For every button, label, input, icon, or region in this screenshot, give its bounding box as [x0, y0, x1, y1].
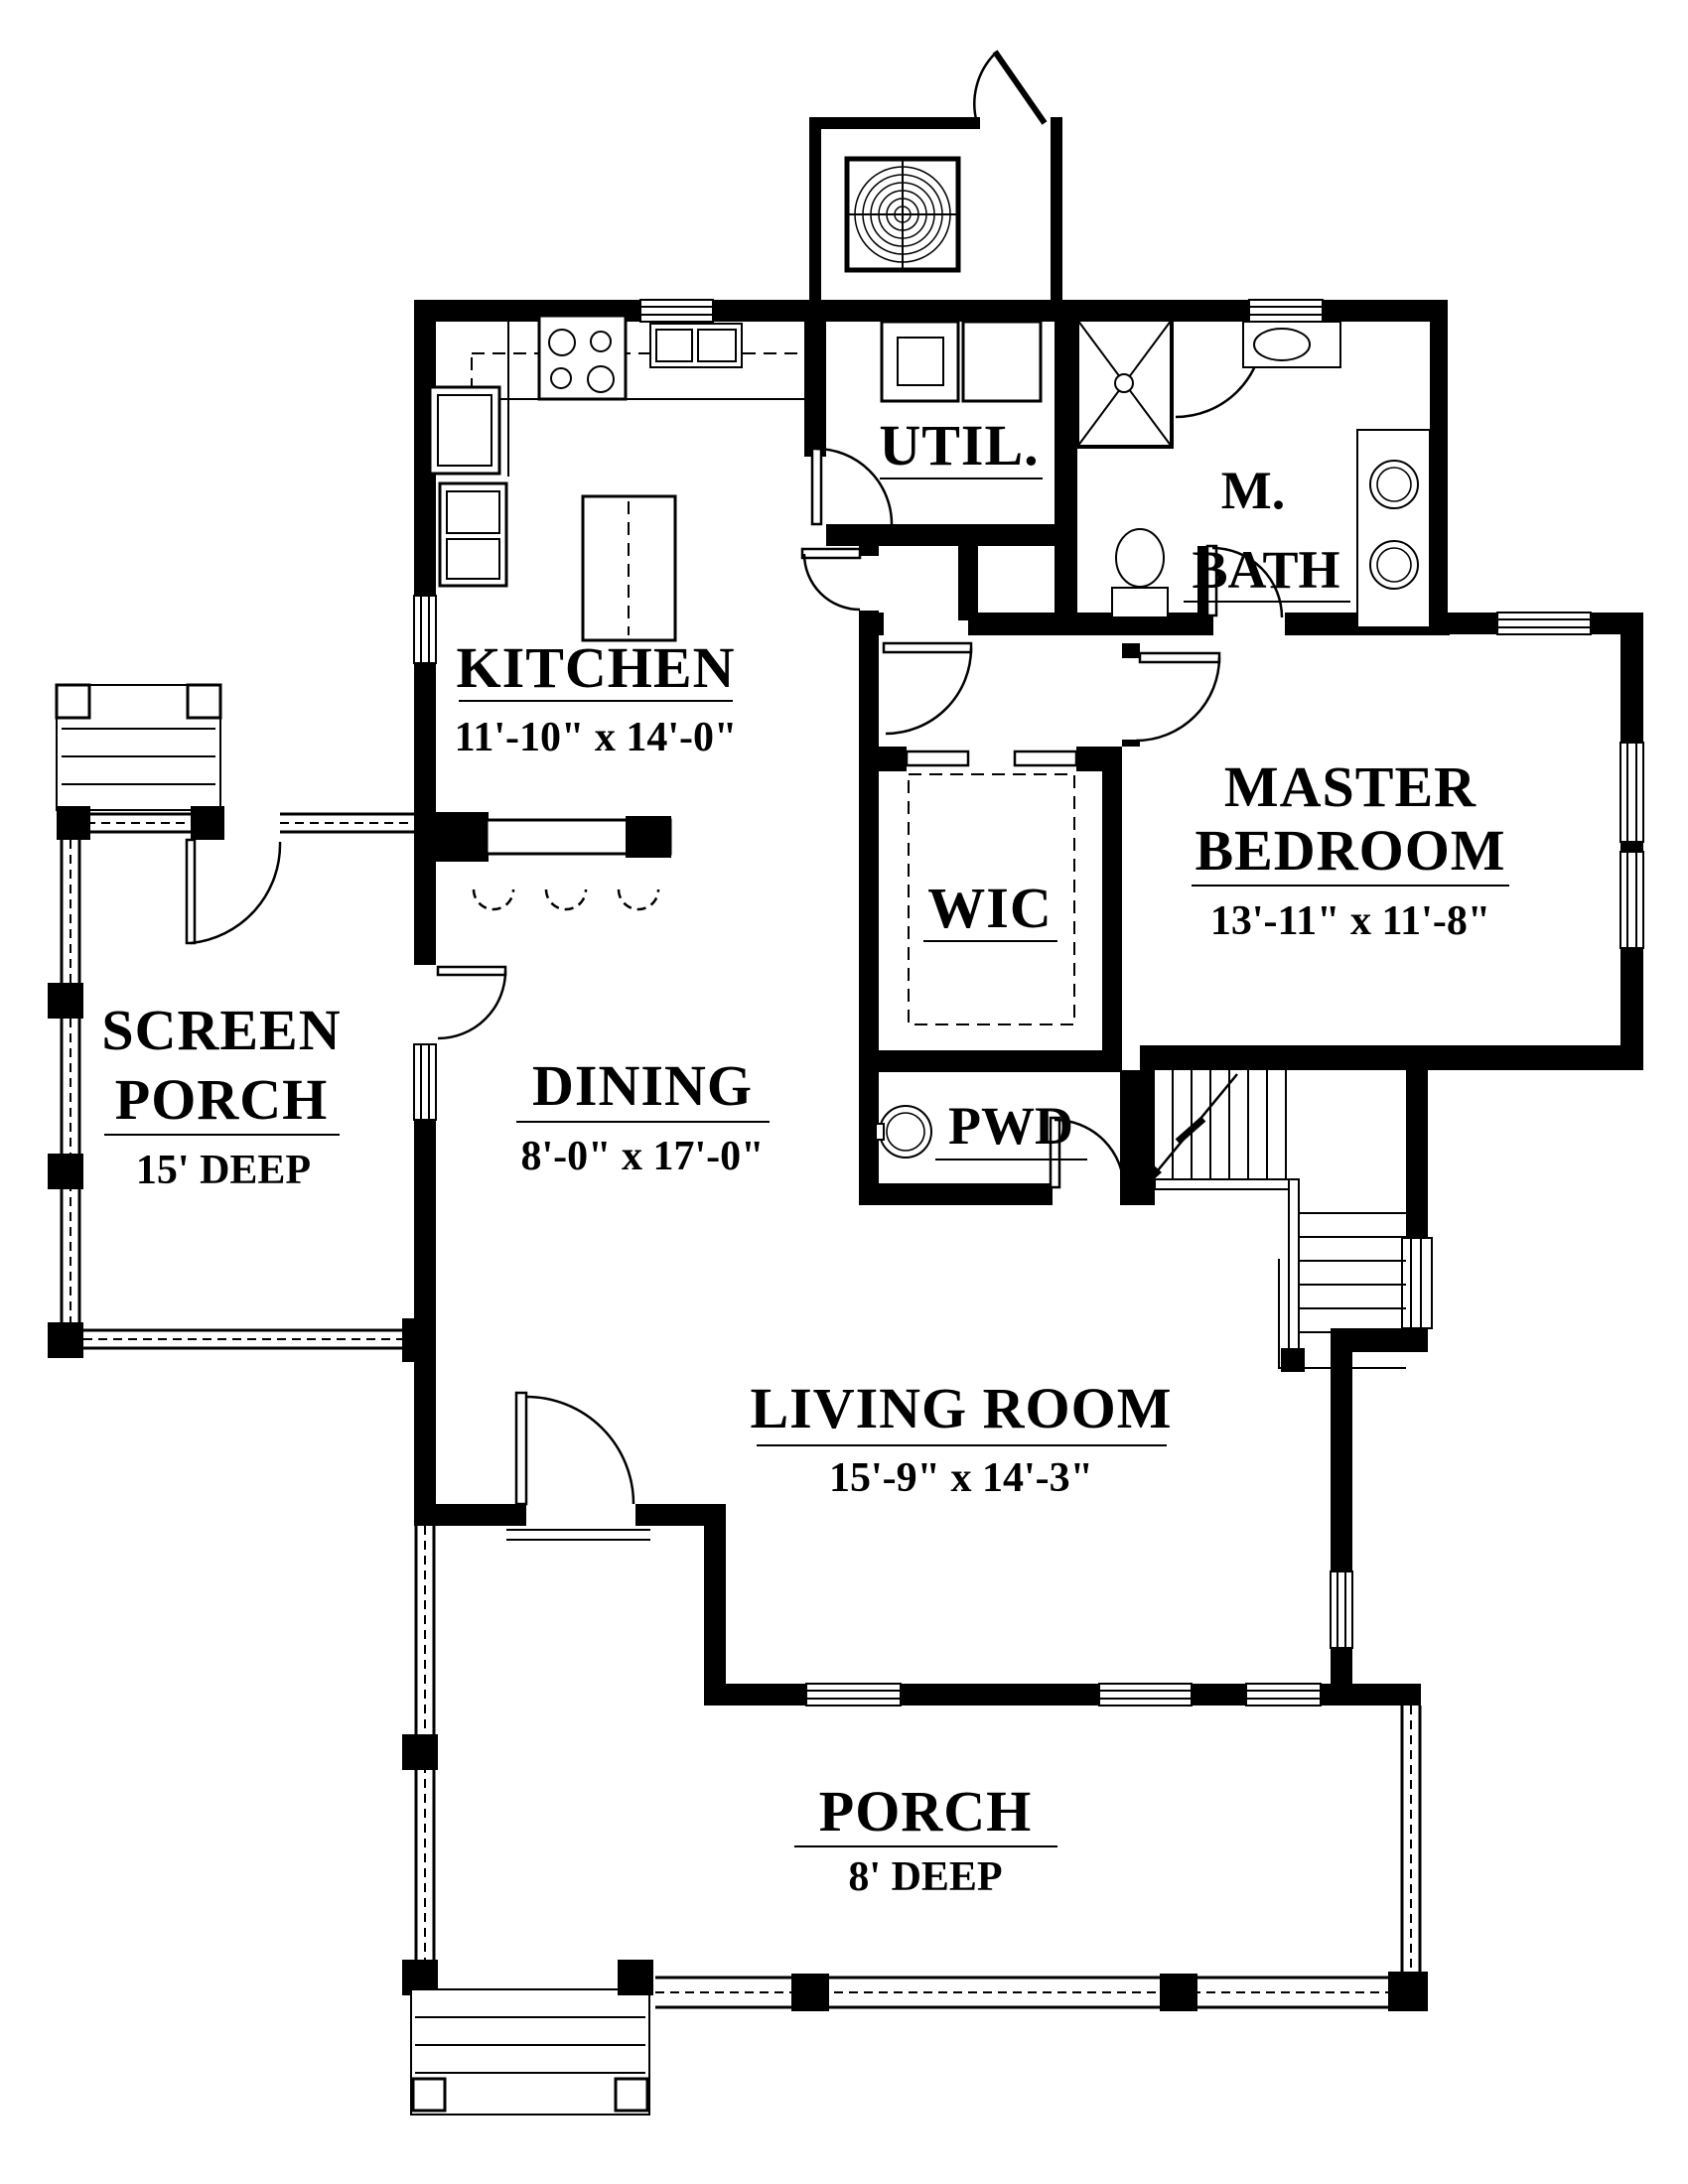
- door-leaf: [995, 52, 1045, 123]
- room-name: SCREEN: [101, 998, 341, 1062]
- window: [806, 1684, 901, 1706]
- room-dims: 8'-0" x 17'-0": [521, 1134, 765, 1179]
- mechanical-closet: [809, 52, 1062, 300]
- room-depth: 8' DEEP: [848, 1854, 1002, 1900]
- floor-plan-page: KITCHEN 11'-10" x 14'-0" UTIL. M. BATH M…: [0, 0, 1688, 2184]
- burner: [588, 366, 614, 392]
- stair-railing: [1289, 1179, 1299, 1354]
- kitchen-sink-icon: [650, 324, 742, 367]
- pwd-sink-icon: [876, 1106, 931, 1158]
- porch-post: [1388, 1972, 1428, 2011]
- porch-post: [791, 1974, 829, 2011]
- wall: [859, 1183, 1053, 1205]
- wall-oven-icon: [430, 387, 499, 474]
- stool-icon: [546, 889, 586, 909]
- room-name: M.: [1221, 461, 1285, 520]
- closet-door: [974, 52, 1045, 123]
- faucet-icon: [876, 1124, 884, 1140]
- wall: [859, 546, 879, 556]
- wall: [1122, 643, 1140, 658]
- room-dims: 11'-10" x 14'-0": [455, 715, 738, 760]
- wall: [826, 524, 1077, 546]
- stool-icon: [474, 889, 513, 909]
- wic-label: WIC: [923, 876, 1057, 941]
- porch-post: [48, 1154, 83, 1189]
- wall: [968, 613, 1213, 635]
- door-swing: [1136, 657, 1219, 741]
- wall: [1120, 1070, 1155, 1205]
- window: [1402, 1238, 1432, 1328]
- window: [1249, 300, 1323, 322]
- lav-sink-icon: [1254, 329, 1310, 360]
- window: [414, 596, 436, 663]
- wall: [859, 1050, 1122, 1072]
- vanity-counter: [1357, 430, 1430, 627]
- door-leaf: [907, 751, 968, 765]
- room-name: KITCHEN: [457, 635, 736, 700]
- wall: [1192, 1684, 1246, 1706]
- wall: [1430, 300, 1448, 634]
- room-name: PORCH: [819, 1779, 1032, 1843]
- newel-post: [616, 2079, 647, 2111]
- porch-post: [618, 1960, 653, 1995]
- window: [1246, 1684, 1321, 1706]
- burner: [549, 330, 575, 355]
- wall: [859, 613, 884, 635]
- hvac-fan-icon: [847, 159, 958, 270]
- living-room-label: LIVING ROOM 15'-9" x 14'-3": [750, 1376, 1172, 1501]
- door-leaf: [1015, 751, 1076, 765]
- toilet-bowl: [1116, 529, 1164, 587]
- room-name: WIC: [927, 876, 1052, 940]
- porch-post: [191, 806, 224, 840]
- wall: [1591, 613, 1643, 634]
- makeup-counter: [1243, 322, 1340, 367]
- window: [1099, 1684, 1192, 1706]
- porch-post: [48, 983, 83, 1019]
- pwd-label: PWD: [935, 1096, 1087, 1160]
- wall: [1323, 300, 1448, 322]
- screen-door: [187, 840, 280, 943]
- closet-wall-top: [809, 117, 980, 129]
- burner: [591, 332, 611, 351]
- bar-counter: [474, 816, 671, 909]
- door-swing: [438, 971, 505, 1038]
- room-name: DINING: [532, 1053, 753, 1118]
- porch-post: [48, 1322, 83, 1358]
- door-swing: [886, 648, 971, 734]
- room-name: BEDROOM: [1195, 818, 1505, 883]
- wall: [1331, 1350, 1352, 1571]
- window: [414, 1044, 436, 1120]
- porch-dining-door: [438, 967, 505, 1038]
- newel-post: [57, 685, 89, 718]
- wall: [958, 546, 978, 620]
- refrigerator-icon: [440, 483, 506, 586]
- porch-steps: [57, 685, 220, 810]
- wall: [1140, 1045, 1643, 1070]
- wall: [859, 635, 879, 747]
- wall-column: [414, 812, 489, 862]
- wall: [901, 1684, 1099, 1706]
- wall: [859, 747, 907, 771]
- room-dims: 15'-9" x 14'-3": [829, 1455, 1093, 1501]
- wall: [1055, 322, 1077, 635]
- window: [640, 300, 713, 322]
- stair-railing: [1155, 1179, 1299, 1189]
- shower-icon: [1077, 320, 1172, 447]
- suite-entry-door: [884, 643, 971, 734]
- stool-icon: [619, 889, 658, 909]
- porch-post: [402, 1318, 436, 1362]
- wic-double-doors: [907, 751, 1076, 765]
- master-bedroom-label: MASTER BEDROOM 13'-11" x 11'-8": [1192, 754, 1509, 944]
- floor-plan-drawing: KITCHEN 11'-10" x 14'-0" UTIL. M. BATH M…: [0, 0, 1688, 2184]
- kitchen-label: KITCHEN 11'-10" x 14'-0": [455, 635, 738, 760]
- room-dims: 13'-11" x 11'-8": [1210, 898, 1490, 944]
- closet-wall-right: [1051, 117, 1062, 300]
- door-swing: [974, 54, 995, 123]
- porch-post: [1160, 1974, 1197, 2011]
- room-labels: KITCHEN 11'-10" x 14'-0" UTIL. M. BATH M…: [101, 413, 1509, 1900]
- front-door: [506, 1393, 650, 1540]
- stove-icon: [539, 316, 626, 399]
- toilet-tank: [1112, 588, 1168, 617]
- dryer-icon: [963, 322, 1041, 401]
- room-depth: 15' DEEP: [136, 1148, 311, 1193]
- room-name: LIVING ROOM: [750, 1376, 1172, 1440]
- room-name: MASTER: [1224, 754, 1477, 819]
- wall: [414, 1504, 526, 1526]
- wall: [1102, 747, 1122, 1072]
- porch-post: [57, 806, 90, 840]
- porch-label: PORCH 8' DEEP: [794, 1779, 1057, 1900]
- window-mullion: [1620, 842, 1643, 852]
- screen-porch-label: SCREEN PORCH 15' DEEP: [101, 998, 341, 1193]
- porch-steps: [411, 1960, 653, 2115]
- burner: [551, 368, 571, 388]
- bar-column: [626, 816, 671, 858]
- porch-post: [402, 1734, 438, 1770]
- bedroom-door: [1136, 653, 1219, 741]
- wall: [859, 771, 879, 1072]
- room-name: PWD: [948, 1096, 1073, 1156]
- wall: [804, 322, 826, 457]
- util-label: UTIL.: [879, 413, 1043, 478]
- room-name: BATH: [1192, 540, 1339, 600]
- island: [583, 496, 675, 640]
- door-swing: [526, 1397, 633, 1504]
- wall: [704, 1504, 726, 1706]
- wall: [1331, 1648, 1352, 1706]
- wall: [704, 1684, 806, 1706]
- room-name: PORCH: [115, 1067, 328, 1132]
- window: [1620, 743, 1643, 842]
- newel-post: [188, 685, 220, 718]
- window: [1331, 1571, 1352, 1648]
- door-swing: [191, 842, 280, 943]
- pantry-door: [802, 549, 860, 610]
- util-fixtures: [882, 322, 1041, 401]
- wall: [1406, 1045, 1428, 1238]
- kitchen-fixtures: [430, 316, 804, 909]
- washer-icon: [882, 322, 958, 401]
- stairs: [1144, 1070, 1406, 1372]
- toilet-icon: [1112, 529, 1168, 617]
- window: [1497, 613, 1591, 634]
- closet-wall-left: [809, 117, 821, 300]
- dining-label: DINING 8'-0" x 17'-0": [516, 1053, 770, 1179]
- master-bath-label: M. BATH: [1184, 461, 1350, 602]
- window: [1620, 852, 1643, 948]
- door-swing: [804, 554, 860, 610]
- wall: [1620, 948, 1643, 1070]
- room-name: UTIL.: [879, 413, 1039, 478]
- shower-drain: [1115, 374, 1133, 392]
- newel-post: [413, 2079, 445, 2111]
